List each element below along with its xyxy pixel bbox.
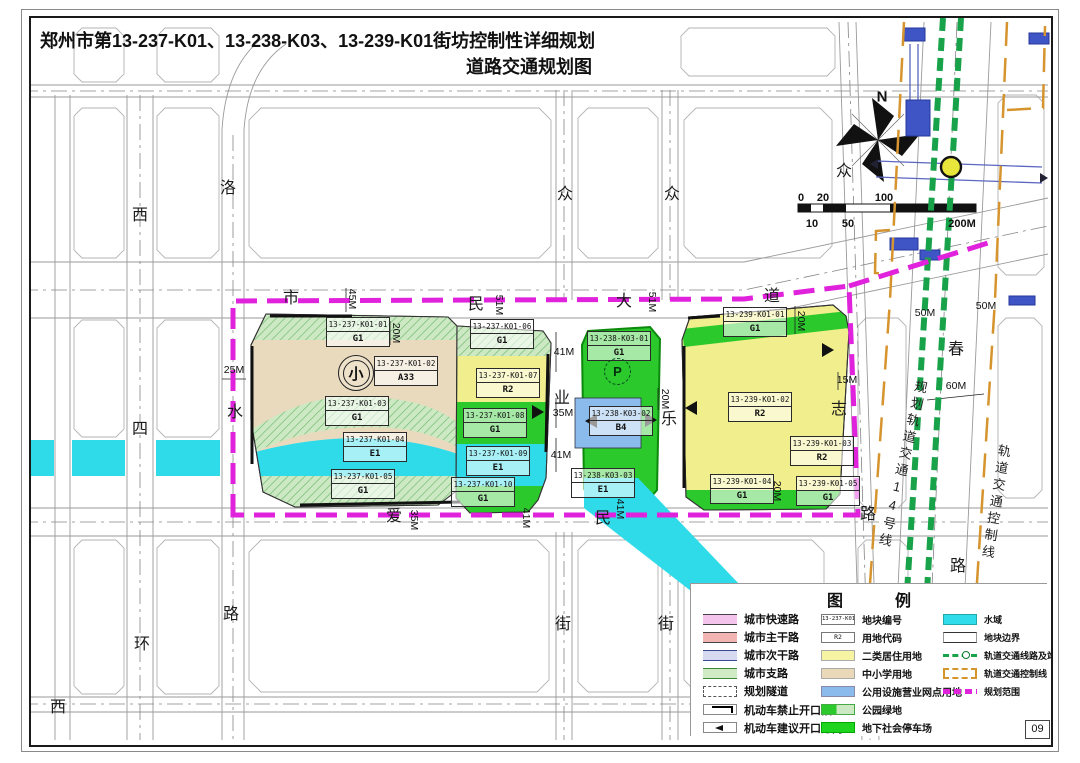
- parcel-block-13-237-mid: [450, 322, 556, 516]
- legend-item-label: 城市次干路: [744, 647, 799, 663]
- legend-item-rail-control: 轨道交通控制线: [943, 664, 1053, 682]
- legend-item-label: 地下社会停车场: [862, 720, 932, 735]
- legend-item-label: 中小学用地: [862, 666, 912, 681]
- utility-icon: [821, 686, 855, 697]
- school-icon: [821, 668, 855, 679]
- parking-symbol-char: P: [613, 364, 622, 379]
- legend-item-label: 城市主干路: [744, 629, 799, 645]
- legend-item-label: 轨道交通线路及站点: [984, 649, 1053, 662]
- tunnel-icon: [703, 686, 737, 697]
- drawing-frame: 西四环西洛水路市民大道众众众业乐志春爱民街街路路25M45M20M51M51M4…: [29, 16, 1053, 747]
- legend-item-label: 二类居住用地: [862, 648, 922, 663]
- rail-icon: [943, 650, 977, 661]
- parcel-block-13-239: [682, 305, 850, 512]
- road-main-icon: [703, 632, 737, 643]
- road-express-icon: [703, 614, 737, 625]
- legend: 图 例 城市快速路城市主干路城市次干路城市支路规划隧道机动车禁止开口段机动车建议…: [690, 583, 1047, 736]
- legend-item-label: 规划范围: [984, 685, 1020, 698]
- parking-icon: [821, 722, 855, 733]
- residential-icon: [821, 650, 855, 661]
- legend-item-school: 中小学用地: [821, 664, 962, 682]
- boundary-icon: [943, 632, 977, 643]
- opening-dir-icon: [703, 722, 737, 733]
- legend-item-park: 公园绿地: [821, 700, 962, 718]
- park-icon: [821, 704, 855, 715]
- planning-map-page: 西四环西洛水路市民大道众众众业乐志春爱民街街路路25M45M20M51M51M4…: [0, 0, 1080, 763]
- road-branch-icon: [703, 668, 737, 679]
- road-secondary-icon: [703, 650, 737, 661]
- legend-item-label: 水域: [984, 613, 1002, 626]
- legend-item-plan-scope: 规划范围: [943, 682, 1053, 700]
- legend-item-residential: 二类居住用地: [821, 646, 962, 664]
- legend-title: 图 例: [691, 587, 1047, 611]
- legend-item-label: 规划隧道: [744, 683, 788, 699]
- legend-item-utility: 公用设施营业网点用地: [821, 682, 962, 700]
- parcel-b4-utility: [575, 398, 641, 448]
- river-west: [30, 440, 220, 476]
- parcel-code-icon: 13-237-K01-01: [821, 614, 855, 625]
- page-subtitle: 道路交通规划图: [40, 54, 596, 80]
- legend-item-label: 机动车禁止开口段: [744, 702, 832, 718]
- legend-item-label: 城市支路: [744, 665, 788, 681]
- metro-station-icon: [941, 157, 961, 177]
- rail-control-icon: [943, 668, 977, 679]
- legend-column-3: 水域地块边界轨道交通线路及站点轨道交通控制线规划范围: [943, 610, 1053, 700]
- legend-item-boundary: 地块边界: [943, 628, 1053, 646]
- legend-item-label: 用地代码: [862, 630, 902, 645]
- legend-item-label: 地块编号: [862, 612, 902, 627]
- water-icon: [943, 614, 977, 625]
- legend-item-rail: 轨道交通线路及站点: [943, 646, 1053, 664]
- title-block: 郑州市第13-237-K01、13-238-K03、13-239-K01街坊控制…: [40, 28, 596, 80]
- legend-item-label: 公园绿地: [862, 702, 902, 717]
- legend-item-label: 城市快速路: [744, 611, 799, 627]
- page-title: 郑州市第13-237-K01、13-238-K03、13-239-K01街坊控制…: [40, 28, 596, 54]
- plan-scope-icon: [943, 689, 977, 694]
- school-symbol: 小: [338, 355, 374, 391]
- school-symbol-char: 小: [343, 360, 370, 387]
- no-opening-icon: [703, 704, 737, 715]
- legend-item-parking: 地下社会停车场: [821, 719, 962, 737]
- legend-item-water: 水域: [943, 610, 1053, 628]
- legend-column-2: 13-237-K01-01地块编号R2用地代码二类居住用地中小学用地公用设施营业…: [821, 610, 962, 737]
- legend-item-parcel-code: 13-237-K01-01地块编号: [821, 610, 962, 628]
- legend-item-use-code: R2用地代码: [821, 628, 962, 646]
- page-number: 09: [1025, 720, 1050, 739]
- use-code-icon: R2: [821, 632, 855, 643]
- parcel-block-13-237-west: [248, 312, 464, 510]
- legend-item-label: 轨道交通控制线: [984, 667, 1047, 680]
- underground-parking-symbol: P: [604, 358, 631, 385]
- legend-item-label: 地块边界: [984, 631, 1020, 644]
- map-stage: 西四环西洛水路市民大道众众众业乐志春爱民街街路路25M45M20M51M51M4…: [29, 16, 1053, 747]
